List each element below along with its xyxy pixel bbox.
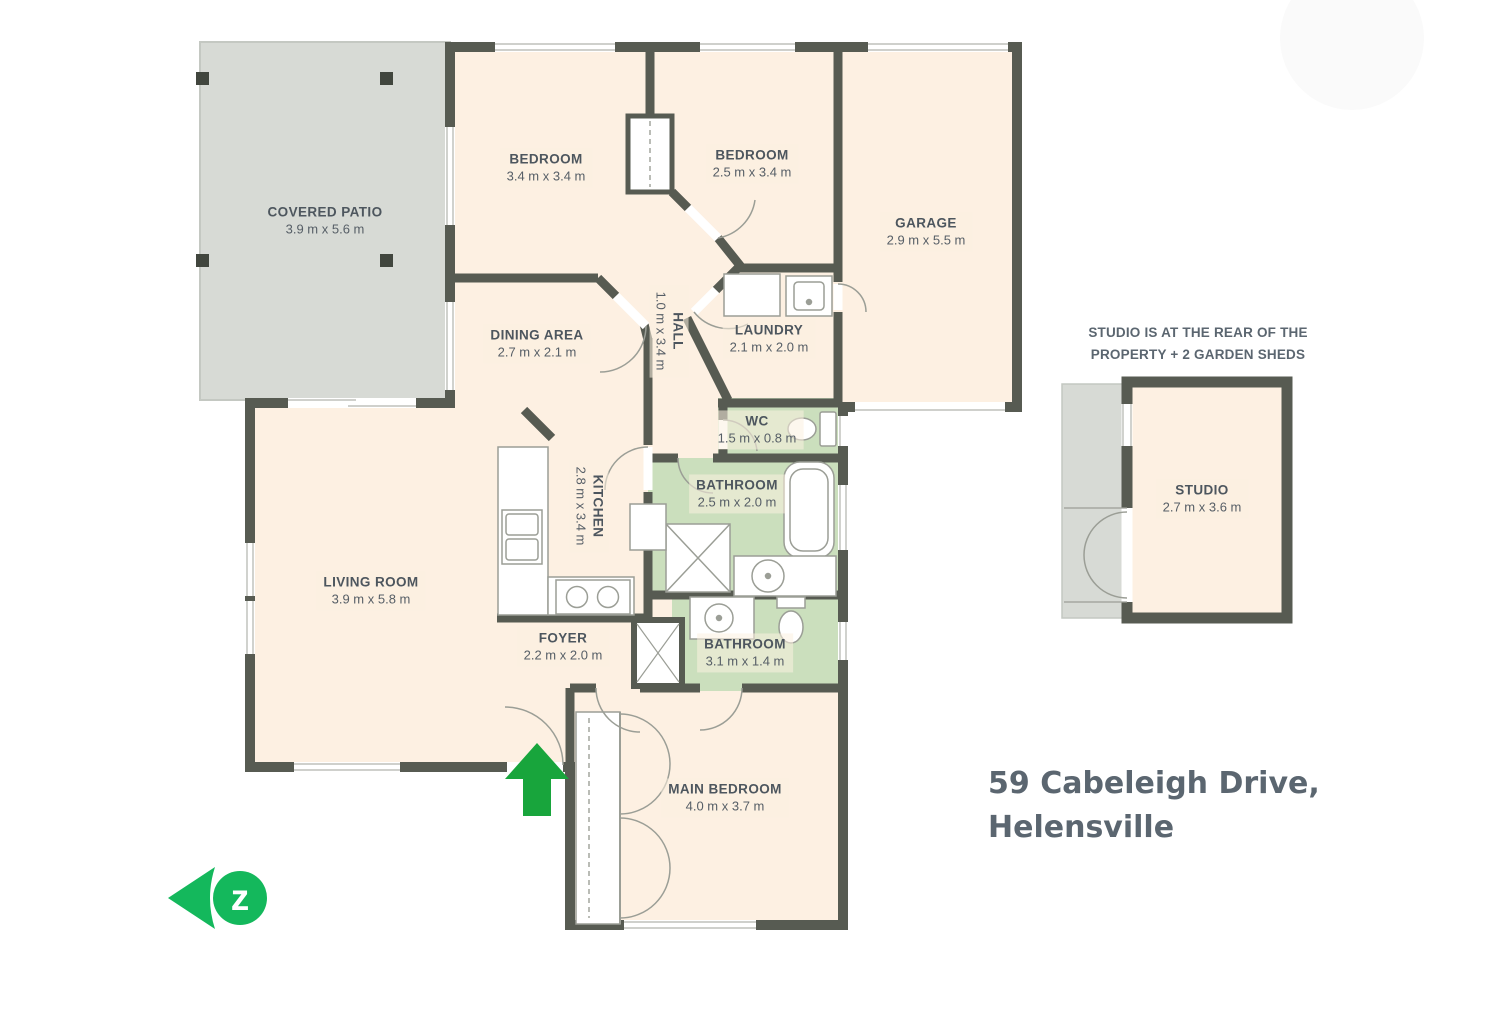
room-label-wc: WC 1.5 m x 0.8 m [711, 410, 804, 449]
room-label-kitchen: KITCHEN 2.8 m x 3.4 m [569, 460, 608, 553]
room-name: BEDROOM [507, 151, 586, 168]
room-label-studio: STUDIO 2.7 m x 3.6 m [1156, 479, 1249, 518]
kitchen-bench [630, 504, 666, 550]
logo-letter: z [231, 877, 250, 918]
patio-post [196, 72, 209, 85]
room-label-foyer: FOYER 2.2 m x 2.0 m [517, 627, 610, 666]
room-name: WC [718, 413, 797, 430]
room-dims: 2.7 m x 3.6 m [1163, 499, 1242, 515]
room-dims: 1.0 m x 3.4 m [652, 292, 668, 371]
floor-plan-page: { "address": { "line1": "59 Cabeleigh Dr… [0, 0, 1500, 1028]
patio-post [196, 254, 209, 267]
address-line-2: Helensville [988, 806, 1320, 850]
patio-post [380, 72, 393, 85]
room-dims: 2.8 m x 3.4 m [572, 467, 588, 546]
room-label-bathroom-2: BATHROOM 3.1 m x 1.4 m [697, 633, 793, 672]
room-name: COVERED PATIO [268, 204, 383, 221]
hall-closet [628, 116, 672, 192]
wardrobe [576, 712, 620, 924]
room-name: GARAGE [887, 215, 966, 232]
room-dims: 2.5 m x 3.4 m [713, 164, 792, 180]
room-label-main-bedroom: MAIN BEDROOM 4.0 m x 3.7 m [661, 778, 789, 817]
room-name: HALL [669, 292, 686, 371]
room-label-garage: GARAGE 2.9 m x 5.5 m [880, 212, 973, 251]
address-line-1: 59 Cabeleigh Drive, [988, 762, 1320, 806]
room-name: LIVING ROOM [323, 574, 418, 591]
room-label-bedroom-1: BEDROOM 3.4 m x 3.4 m [500, 148, 593, 187]
room-dims: 2.1 m x 2.0 m [730, 339, 809, 355]
room-dims: 3.4 m x 3.4 m [507, 168, 586, 184]
room-name: MAIN BEDROOM [668, 781, 782, 798]
room-dims: 4.0 m x 3.7 m [668, 798, 782, 814]
room-label-living-room: LIVING ROOM 3.9 m x 5.8 m [316, 571, 425, 610]
room-dims: 1.5 m x 0.8 m [718, 430, 797, 446]
vanity-icon [734, 556, 836, 596]
room-name: LAUNDRY [730, 322, 809, 339]
room-name: DINING AREA [490, 327, 583, 344]
room-name: KITCHEN [589, 467, 606, 546]
room-name: BATHROOM [696, 477, 778, 494]
room-name: BATHROOM [704, 636, 786, 653]
logo-arrow-icon [168, 867, 215, 929]
studio-note: STUDIO IS AT THE REAR OF THE PROPERTY + … [1062, 322, 1334, 365]
room-label-bedroom-2: BEDROOM 2.5 m x 3.4 m [706, 144, 799, 183]
room-label-bathroom-1: BATHROOM 2.5 m x 2.0 m [689, 474, 785, 513]
property-address: 59 Cabeleigh Drive, Helensville [988, 762, 1320, 849]
room-label-covered-patio: COVERED PATIO 3.9 m x 5.6 m [261, 201, 390, 240]
room-dims: 2.5 m x 2.0 m [696, 494, 778, 510]
room-label-dining-area: DINING AREA 2.7 m x 2.1 m [483, 324, 590, 363]
room-label-laundry: LAUNDRY 2.1 m x 2.0 m [723, 319, 816, 358]
room-dims: 2.2 m x 2.0 m [524, 647, 603, 663]
agency-logo: z [160, 858, 280, 938]
room-name: FOYER [524, 630, 603, 647]
room-name: STUDIO [1163, 482, 1242, 499]
toilet-icon [777, 597, 805, 608]
room-dims: 3.9 m x 5.8 m [323, 591, 418, 607]
room-dims: 2.7 m x 2.1 m [490, 344, 583, 360]
room-dims: 3.1 m x 1.4 m [704, 653, 786, 669]
room-dims: 2.9 m x 5.5 m [887, 232, 966, 248]
room-name: BEDROOM [713, 147, 792, 164]
patio-post [380, 254, 393, 267]
room-label-hall: HALL 1.0 m x 3.4 m [649, 285, 688, 378]
watermark-circle [1280, 0, 1424, 110]
laundry-fixtures [724, 274, 832, 316]
room-dims: 3.9 m x 5.6 m [268, 221, 383, 237]
